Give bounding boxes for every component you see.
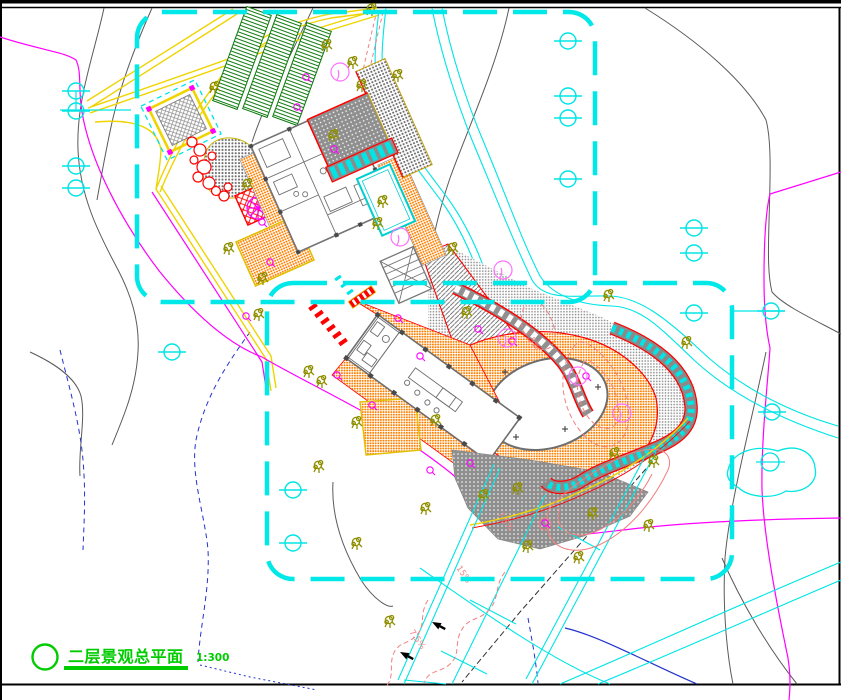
slope-label: 7.5%	[407, 628, 428, 651]
drawing-title: 二层景观总平面	[68, 647, 184, 666]
lower-landscape-area	[332, 244, 696, 549]
site-plan-canvas[interactable]: 7.5% 15% 7.5% 7.5%	[0, 0, 841, 700]
upper-terrace-complex	[141, 7, 446, 304]
cad-drawing-window: 7.5% 15% 7.5% 7.5%	[0, 0, 841, 700]
planting-strips	[213, 7, 332, 126]
drawing-scale: 1:300	[196, 652, 229, 664]
title-underline	[64, 666, 188, 670]
detail-circle-icon	[33, 645, 58, 670]
pond-outline	[727, 448, 815, 496]
slope-label: 15%	[454, 564, 473, 585]
title-block: 二层景观总平面 1:300	[33, 645, 230, 671]
